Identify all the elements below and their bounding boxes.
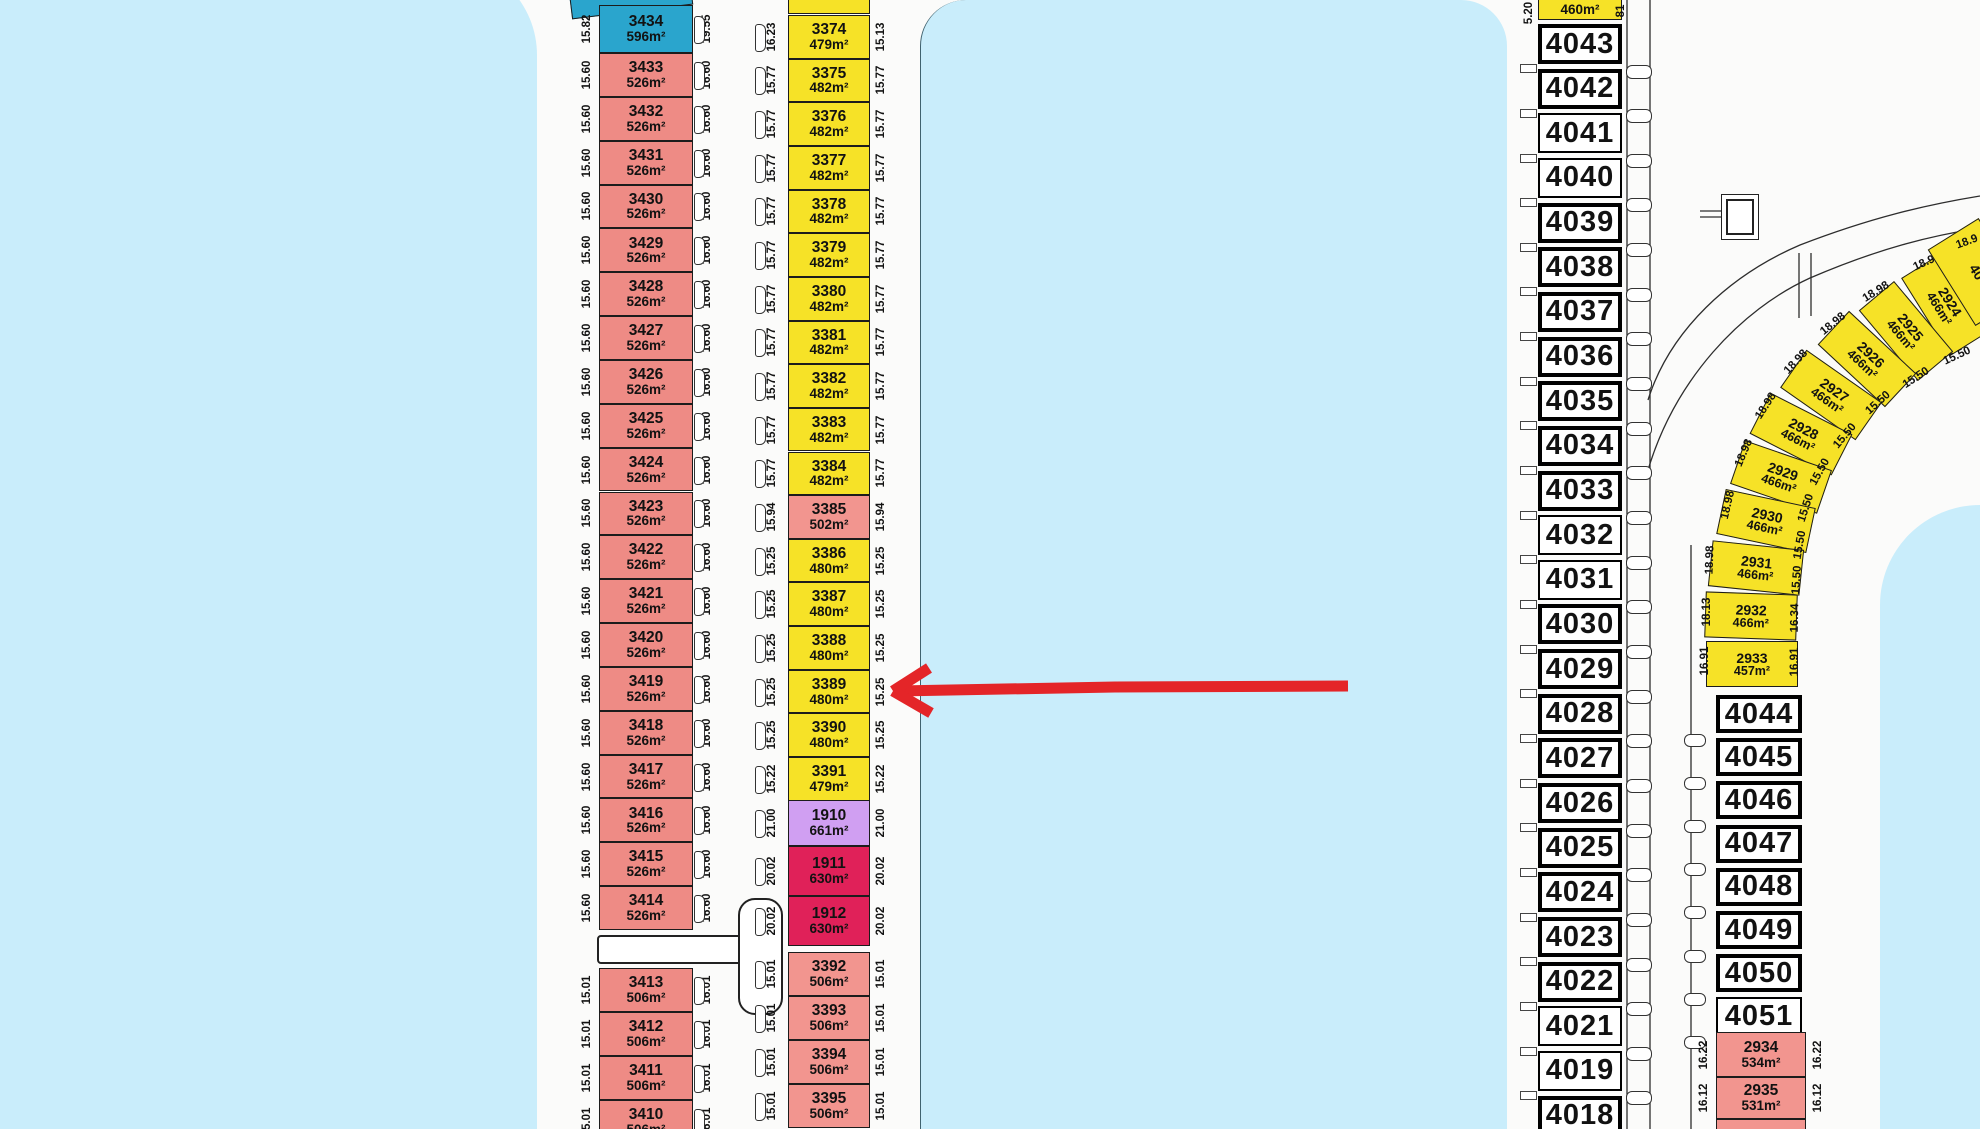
lot-area: 502m² (809, 518, 848, 532)
boundary-tick (1520, 689, 1537, 698)
dim-right: 20.02 (875, 907, 887, 936)
dim-right: 15.25 (875, 677, 887, 706)
driveway-mark (1626, 332, 1652, 346)
boundary-tick (1520, 645, 1537, 654)
boundary-tick (1520, 64, 1537, 73)
lot-area: 526m² (626, 558, 665, 572)
dim-left: 15.60 (581, 148, 593, 177)
lot-area: 526m² (626, 690, 665, 704)
lot-area: 531m² (1741, 1099, 1780, 1113)
lot-4048: 4048 (1716, 868, 1802, 906)
lot-4050: 4050 (1716, 954, 1802, 992)
dim-right: 15.25 (875, 546, 887, 575)
lot-area: 526m² (626, 734, 665, 748)
easement-mark (694, 193, 705, 221)
lot-3429: 3429526m² (599, 228, 693, 272)
easement-mark (694, 413, 705, 441)
lot-number: 1910 (812, 808, 846, 824)
lot-2933: 2933457m² (1706, 641, 1798, 687)
easement-mark (755, 242, 766, 270)
lot-3388: 3388480m² (788, 626, 870, 670)
dim-right: 21.00 (875, 809, 887, 838)
dim-right: 15.01 (875, 1048, 887, 1077)
lot-number: 3374 (812, 22, 846, 38)
dim-left: 15.01 (766, 960, 778, 989)
driveway-mark (1626, 109, 1652, 123)
lot-4033: 4033 (1538, 471, 1622, 511)
lot-3417: 3417526m² (599, 755, 693, 799)
dim-right: 15.22 (875, 764, 887, 793)
lot-area: 480m² (809, 736, 848, 750)
lot-4029: 4029 (1538, 649, 1622, 689)
lot-3376: 3376482m² (788, 102, 870, 146)
lot-number: 3431 (629, 148, 663, 164)
boundary-tick (1520, 1047, 1537, 1056)
easement-mark (755, 329, 766, 357)
lot-area: 506m² (809, 975, 848, 989)
lot-4027: 4027 (1538, 738, 1622, 778)
easement-mark (694, 150, 705, 178)
lot-area: 482m² (809, 431, 848, 445)
lot-3383: 3383482m² (788, 408, 870, 452)
lot-3393: 3393506m² (788, 996, 870, 1040)
lot-number: 3395 (812, 1091, 846, 1107)
lot-3380: 3380482m² (788, 277, 870, 321)
lot-area: 526m² (626, 295, 665, 309)
lot-number: 3381 (812, 328, 846, 344)
dim-left: 15.25 (766, 590, 778, 619)
boundary-tick (1520, 287, 1537, 296)
lot-number: 40 (1967, 262, 1980, 283)
lot-3390: 3390480m² (788, 713, 870, 757)
lot-number: 3382 (812, 371, 846, 387)
lot-area: 526m² (626, 383, 665, 397)
dim-left: 15.60 (581, 850, 593, 879)
dim-left: 15.60 (581, 455, 593, 484)
dim-right: 15.77 (875, 66, 887, 95)
lot-number: 3434 (629, 14, 663, 30)
boundary-tick (1520, 555, 1537, 564)
lot-number: 3375 (812, 66, 846, 82)
dim-left: 15.60 (581, 762, 593, 791)
water-area-middle (920, 0, 1507, 1129)
lot-area: 526m² (626, 120, 665, 134)
driveway-mark (1626, 913, 1652, 927)
easement-mark (755, 810, 766, 838)
lot-3377: 3377482m² (788, 146, 870, 190)
lot-number: 3391 (812, 764, 846, 780)
driveway-mark (1626, 1002, 1652, 1016)
dim-left: 15.60 (581, 674, 593, 703)
driveway-mark (1626, 154, 1652, 168)
easement-mark (694, 369, 705, 397)
driveway-mark (1626, 690, 1652, 704)
driveway-mark (1626, 65, 1652, 79)
lot-3410: 3410506m² (599, 1100, 693, 1129)
driveway-mark (1626, 198, 1652, 212)
lot-3384: 3384482m² (788, 452, 870, 496)
driveway-mark (1684, 777, 1706, 790)
lot-2935: 2935531m² (1716, 1077, 1806, 1119)
dim-left: 15.60 (581, 894, 593, 923)
easement-mark (694, 1021, 705, 1049)
driveway-mark (1626, 824, 1652, 838)
easement-mark (694, 676, 705, 704)
lot-3378: 3378482m² (788, 190, 870, 234)
easement-mark (755, 460, 766, 488)
lot-number: 3415 (629, 849, 663, 865)
lot-3389: 3389480m² (788, 670, 870, 714)
lot-2936: 2936 (1716, 1119, 1806, 1129)
easement-mark (694, 895, 705, 923)
dim-left: 15.60 (581, 718, 593, 747)
lot-area: 480m² (809, 693, 848, 707)
lot-number: 3392 (812, 959, 846, 975)
boundary-tick (1520, 198, 1537, 207)
lot-area: 457m² (1734, 665, 1770, 678)
lot-area: 526m² (626, 514, 665, 528)
dim-left: 15.22 (766, 764, 778, 793)
boundary-tick (1520, 1091, 1537, 1100)
dim-left: 15.60 (581, 367, 593, 396)
lot-number: 3378 (812, 197, 846, 213)
lot-4035: 4035 (1538, 381, 1622, 421)
boundary-tick (1520, 957, 1537, 966)
lot-number: 3412 (629, 1019, 663, 1035)
dim-right: 15.77 (875, 372, 887, 401)
dim-left: 15.60 (581, 631, 593, 660)
driveway-mark (1626, 1047, 1652, 1061)
water-area-left (0, 0, 537, 1129)
dim-arc-inner: 16.91 (1789, 648, 1801, 677)
lot-3381: 3381482m² (788, 321, 870, 365)
lot-number: 3425 (629, 411, 663, 427)
lot-3415: 3415526m² (599, 842, 693, 886)
boundary-tick (1520, 377, 1537, 386)
lot-4043: 4043 (1538, 24, 1622, 64)
lot-area: 596m² (626, 30, 665, 44)
easement-mark (694, 632, 705, 660)
dim-right: 15.25 (875, 590, 887, 619)
lot-area: 526m² (626, 778, 665, 792)
lot-area: 466m² (1737, 567, 1774, 583)
lot-3412: 3412506m² (599, 1012, 693, 1056)
dim-arc-outer: 18.98 (1704, 545, 1717, 574)
dim-right: 15.77 (875, 328, 887, 357)
easement-mark (694, 764, 705, 792)
lot-4041: 4041 (1538, 113, 1622, 153)
lot-3421: 3421526m² (599, 579, 693, 623)
lot-4040: 4040 (1538, 158, 1622, 198)
lot-area: 482m² (809, 212, 848, 226)
lot-4042: 4042 (1538, 69, 1622, 109)
lot-3428: 3428526m² (599, 272, 693, 316)
lot-area: 506m² (626, 1079, 665, 1093)
dim-left: 15.01 (581, 1020, 593, 1049)
dim-left: 15.77 (766, 153, 778, 182)
dim-arc-inner: 16.34 (1789, 604, 1802, 633)
easement-mark (755, 548, 766, 576)
lot-4024: 4024 (1538, 872, 1622, 912)
lot-number: 3388 (812, 633, 846, 649)
dim-right: 15.77 (875, 284, 887, 313)
lot-number: 3410 (629, 1107, 663, 1123)
lot-area: 482m² (809, 300, 848, 314)
lot-area: 506m² (809, 1107, 848, 1121)
dim-left: 15.77 (766, 415, 778, 444)
dim-left: 15.77 (766, 197, 778, 226)
easement-mark (755, 1005, 766, 1033)
building-footprint (1721, 194, 1759, 240)
driveway-mark (1626, 288, 1652, 302)
dim-left: 15.01 (581, 1064, 593, 1093)
lot-3418: 3418526m² (599, 711, 693, 755)
dim-left: 16.23 (766, 22, 778, 51)
dim-left: 20.02 (766, 857, 778, 886)
lot-number: 3379 (812, 240, 846, 256)
lot-area: 482m² (809, 343, 848, 357)
dim-left: 15.01 (766, 1004, 778, 1033)
easement-mark (694, 106, 705, 134)
easement-mark (755, 67, 766, 95)
dim-right: 15.77 (875, 415, 887, 444)
easement-mark (755, 417, 766, 445)
dim-left: 15.60 (581, 411, 593, 440)
easement-mark (694, 62, 705, 90)
lot-3394: 3394506m² (788, 1040, 870, 1084)
lot-area: 526m² (626, 207, 665, 221)
lot-area: 526m² (626, 427, 665, 441)
easement-mark (694, 720, 705, 748)
easement-mark (755, 858, 766, 886)
lot-number: 3430 (629, 192, 663, 208)
easement-mark (694, 16, 705, 44)
dim-left: 15.77 (766, 372, 778, 401)
dim-right: 16.12 (1812, 1084, 1824, 1113)
dim-arc-outer: 18.13 (1701, 598, 1713, 627)
lot-4031: 4031 (1538, 560, 1622, 600)
easement-mark (694, 807, 705, 835)
lot-area: 526m² (626, 821, 665, 835)
lot-number: 3417 (629, 762, 663, 778)
lot-3411: 3411506m² (599, 1056, 693, 1100)
easement-mark (694, 977, 705, 1005)
lot-area: 479m² (809, 780, 848, 794)
lot-number: 3433 (629, 60, 663, 76)
lot-number: 3394 (812, 1047, 846, 1063)
easement-mark (694, 457, 705, 485)
dim-left: 15.94 (766, 503, 778, 532)
lot-3422: 3422526m² (599, 535, 693, 579)
lot-4025: 4025 (1538, 828, 1622, 868)
lot-4049: 4049 (1716, 911, 1802, 949)
lot-number: 1912 (812, 906, 846, 922)
lot-3430: 3430526m² (599, 185, 693, 229)
lot-number: 3432 (629, 104, 663, 120)
easement-mark (755, 111, 766, 139)
dim-right: 15.77 (875, 459, 887, 488)
driveway-mark (1684, 734, 1706, 747)
lot-3432: 3432526m² (599, 97, 693, 141)
driveway-mark (1684, 863, 1706, 876)
plat-map: 3434596m²15.8219.553433526m²15.6016.6034… (0, 0, 1980, 1129)
dim-left: 15.01 (766, 1048, 778, 1077)
lot-4030: 4030 (1538, 604, 1622, 644)
lot-area: 466m² (1732, 616, 1769, 630)
dim-right: 15.77 (875, 153, 887, 182)
lot-number: 3387 (812, 589, 846, 605)
dim-left: 15.77 (766, 459, 778, 488)
lot-area: 526m² (626, 339, 665, 353)
lot-area: 506m² (626, 991, 665, 1005)
dim-left: 21.00 (766, 809, 778, 838)
lot-3420: 3420526m² (599, 623, 693, 667)
lot-3392: 3392506m² (788, 952, 870, 996)
lot-3414: 3414526m² (599, 886, 693, 930)
driveway-mark (1684, 993, 1706, 1006)
lot-4038: 4038 (1538, 247, 1622, 287)
dim-right: 15.77 (875, 197, 887, 226)
easement-mark (755, 908, 766, 936)
dim-left: 15.77 (766, 110, 778, 139)
easement-mark (755, 1093, 766, 1121)
lot-3427: 3427526m² (599, 316, 693, 360)
boundary-tick (1520, 734, 1537, 743)
dim-left: 15.60 (581, 587, 593, 616)
lot-3423: 3423526m² (599, 492, 693, 536)
lot-area: 526m² (626, 865, 665, 879)
lot-4037: 4037 (1538, 292, 1622, 332)
lot-area: 526m² (626, 602, 665, 616)
dim-right: 15.77 (875, 241, 887, 270)
lot-3391: 3391479m² (788, 757, 870, 801)
boundary-tick (1520, 868, 1537, 877)
lot-number: 3421 (629, 586, 663, 602)
lot-3387: 3387480m² (788, 582, 870, 626)
easement-mark (755, 198, 766, 226)
easement-mark (755, 1049, 766, 1077)
easement-mark (755, 504, 766, 532)
boundary-tick (1520, 243, 1537, 252)
boundary-tick (1520, 109, 1537, 118)
lot-number: 3413 (629, 975, 663, 991)
lot-3379: 3379482m² (788, 233, 870, 277)
dim-right: 20.02 (875, 857, 887, 886)
lot-partial-top-middle (788, 0, 870, 14)
lot-3386: 3386480m² (788, 539, 870, 583)
easement-mark (755, 591, 766, 619)
driveway-mark (1626, 511, 1652, 525)
lot-number: 3376 (812, 109, 846, 125)
easement-mark (694, 1109, 705, 1129)
lot-number: 3416 (629, 806, 663, 822)
lot-4046: 4046 (1716, 781, 1802, 819)
boundary-tick (1520, 600, 1537, 609)
easement-mark (755, 286, 766, 314)
lot-number: 3377 (812, 153, 846, 169)
easement-mark (694, 544, 705, 572)
lot-3374: 3374479m² (788, 15, 870, 59)
boundary-tick (1520, 511, 1537, 520)
lot-area: 482m² (809, 387, 848, 401)
lot-number: 3419 (629, 674, 663, 690)
dim-left: 5.20 (1523, 2, 1535, 24)
boundary-tick (1520, 1002, 1537, 1011)
lot-number: 2934 (1744, 1040, 1778, 1056)
lot-4018: 4018 (1538, 1096, 1622, 1129)
dim-left: 15.82 (581, 15, 593, 44)
dim-arc-outer: 16.91 (1699, 647, 1711, 676)
lot-area: 482m² (809, 81, 848, 95)
lot-area: 480m² (809, 605, 848, 619)
lot-area: 526m² (626, 251, 665, 265)
dim-left: 15.01 (581, 976, 593, 1005)
lot-number: 3422 (629, 542, 663, 558)
lot-area: 526m² (626, 909, 665, 923)
lot-number: 3418 (629, 718, 663, 734)
lot-1910: 1910661m² (788, 800, 870, 846)
dim-left: 15.25 (766, 546, 778, 575)
lot-1912: 1912630m² (788, 896, 870, 946)
dim-left: 15.60 (581, 192, 593, 221)
lot-4028: 4028 (1538, 694, 1622, 734)
dim-left: 16.22 (1698, 1040, 1710, 1069)
dim-left: 15.77 (766, 328, 778, 357)
dim-left: 15.01 (766, 1092, 778, 1121)
lot-number: 3385 (812, 502, 846, 518)
lot-number: 3429 (629, 236, 663, 252)
dim-right: 15.77 (875, 110, 887, 139)
lot-4023: 4023 (1538, 917, 1622, 957)
lot-number: 2935 (1744, 1083, 1778, 1099)
lot-3431: 3431526m² (599, 141, 693, 185)
driveway-mark (1684, 906, 1706, 919)
dim-left: 15.60 (581, 61, 593, 90)
driveway-mark (1626, 1091, 1652, 1105)
driveway-mark (1626, 868, 1652, 882)
lot-number: 3414 (629, 893, 663, 909)
lot-area: 482m² (809, 169, 848, 183)
easement-mark (755, 635, 766, 663)
lot-4021: 4021 (1538, 1006, 1622, 1046)
driveway-mark (1626, 645, 1652, 659)
dim-left: 15.60 (581, 324, 593, 353)
lot-area: 480m² (809, 562, 848, 576)
easement-mark (755, 373, 766, 401)
lot-area: 506m² (626, 1035, 665, 1049)
dim-right: 16.22 (1812, 1040, 1824, 1069)
dim-left: 15.60 (581, 280, 593, 309)
lot-4019: 4019 (1538, 1051, 1622, 1091)
dim-right: 15.13 (875, 22, 887, 51)
lot-3395: 3395506m² (788, 1084, 870, 1128)
dim-left: 15.01 (581, 1108, 593, 1129)
lot-3382: 3382482m² (788, 364, 870, 408)
lot-number: 3393 (812, 1003, 846, 1019)
lot-number: 3424 (629, 455, 663, 471)
easement-mark (755, 679, 766, 707)
driveway-mark (1626, 466, 1652, 480)
dim-left: 15.77 (766, 284, 778, 313)
lot-number: 3384 (812, 459, 846, 475)
dim-right: 15.94 (875, 503, 887, 532)
easement-mark (694, 281, 705, 309)
dim-right: 15.01 (875, 960, 887, 989)
driveway-mark (1626, 556, 1652, 570)
lot-1911: 1911630m² (788, 846, 870, 896)
lot-3433: 3433526m² (599, 53, 693, 97)
easement-mark (755, 24, 766, 52)
